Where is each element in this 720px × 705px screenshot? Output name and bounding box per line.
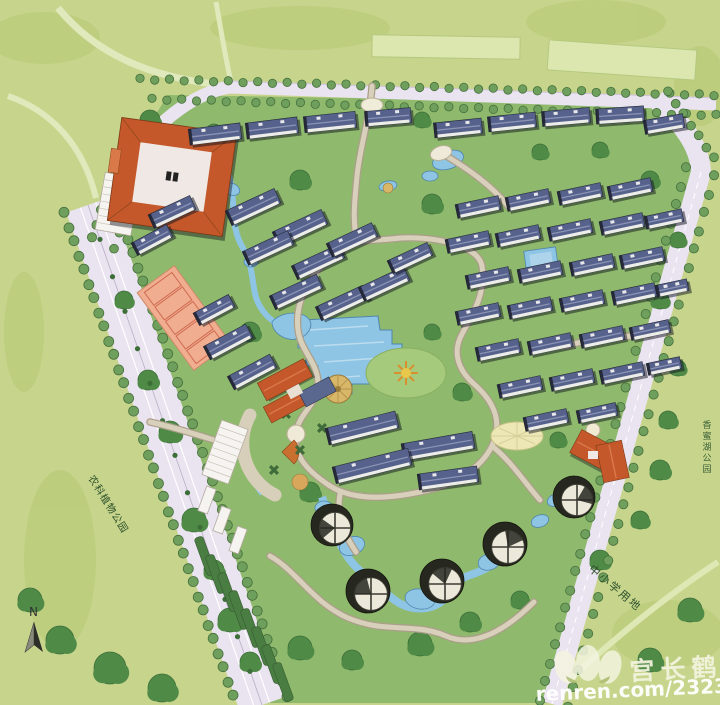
street-tree (327, 81, 335, 89)
street-tree (489, 105, 497, 113)
circular-tower (483, 522, 527, 566)
street-tree (87, 233, 96, 242)
street-tree (577, 86, 585, 94)
street-tree (110, 274, 115, 279)
street-tree (183, 564, 193, 574)
street-tree (188, 419, 198, 429)
street-tree (694, 131, 703, 140)
circular-tower (346, 569, 390, 613)
street-tree (228, 690, 238, 700)
street-tree (69, 236, 79, 246)
street-tree (415, 102, 423, 110)
street-tree (148, 94, 156, 102)
street-tree (676, 182, 685, 191)
street-tree (129, 406, 139, 416)
street-tree (197, 447, 207, 457)
street-tree (710, 153, 719, 162)
circular-tower (420, 559, 464, 603)
street-tree (223, 677, 233, 687)
street-tree (636, 88, 644, 96)
street-tree (634, 446, 643, 455)
street-tree (283, 78, 291, 86)
street-tree (474, 103, 482, 111)
street-tree (621, 383, 630, 392)
street-tree (702, 143, 711, 152)
street-tree (268, 79, 276, 87)
street-tree (386, 82, 394, 90)
street-tree (561, 603, 570, 612)
street-tree (712, 110, 720, 118)
circular-tower (553, 476, 595, 518)
scanned-master-plan: 农科植物公园中小学用地香蜜湖公园 N 宫长鹤 renren.com/232333… (0, 0, 720, 705)
street-tree (122, 309, 127, 314)
street-tree (224, 77, 232, 85)
street-tree (566, 586, 575, 595)
small-gold-plaza (292, 474, 308, 490)
street-tree (247, 669, 252, 674)
street-tree (357, 82, 365, 90)
street-tree (235, 634, 240, 639)
street-tree (239, 78, 247, 86)
circular-tower (311, 504, 353, 546)
street-tree (158, 491, 168, 501)
street-tree (124, 393, 134, 403)
street-tree (684, 263, 693, 272)
street-tree (193, 592, 203, 602)
street-tree (173, 535, 183, 545)
street-tree (110, 244, 119, 253)
street-tree (614, 519, 623, 528)
street-tree (415, 83, 423, 91)
street-tree (163, 507, 173, 517)
street-tree (504, 104, 512, 112)
north-label: N (29, 605, 38, 619)
street-tree (237, 97, 245, 105)
street-tree (298, 80, 306, 88)
street-tree (592, 88, 600, 96)
street-tree (172, 453, 177, 458)
street-tree (213, 649, 223, 659)
pond (422, 171, 438, 181)
street-tree (401, 81, 409, 89)
street-tree (563, 87, 571, 95)
street-tree (631, 346, 640, 355)
street-tree (237, 562, 247, 572)
street-tree (94, 308, 104, 318)
street-tree (385, 101, 393, 109)
street-tree (430, 82, 438, 90)
street-tree (136, 74, 144, 82)
street-tree (185, 490, 190, 495)
site-plan-map: 农科植物公园中小学用地香蜜湖公园 N 宫长鹤 renren.com/232333… (0, 0, 720, 705)
street-tree (704, 190, 713, 199)
street-tree (79, 264, 89, 274)
street-tree (192, 97, 200, 105)
street-tree (178, 548, 188, 558)
street-tree (639, 427, 648, 436)
street-tree (99, 321, 109, 331)
street-tree (571, 566, 580, 575)
street-tree (188, 577, 198, 587)
street-tree (222, 98, 230, 106)
street-tree (489, 84, 497, 92)
street-tree (699, 207, 708, 216)
street-tree (664, 337, 673, 346)
street-tree (518, 85, 526, 93)
street-tree (135, 346, 140, 351)
residential-building (596, 106, 648, 127)
street-tree (694, 227, 703, 236)
street-tree (168, 520, 178, 530)
street-tree (312, 79, 320, 87)
street-tree (556, 623, 565, 632)
street-tree (651, 273, 660, 282)
street-tree (445, 84, 453, 92)
street-tree (64, 223, 74, 233)
pavilion-dome (383, 183, 393, 193)
street-tree (97, 237, 102, 242)
street-tree (311, 100, 319, 108)
street-tree (104, 337, 114, 347)
street-tree (247, 590, 257, 600)
street-tree (198, 605, 208, 615)
street-tree (460, 83, 468, 91)
street-tree (180, 77, 188, 85)
street-tree (134, 422, 144, 432)
street-tree (158, 333, 168, 343)
street-tree (609, 536, 618, 545)
street-tree (445, 103, 453, 111)
street-tree (641, 309, 650, 318)
street-tree (581, 530, 590, 539)
street-tree (254, 77, 262, 85)
street-tree (576, 549, 585, 558)
street-tree (674, 300, 683, 309)
street-tree (84, 280, 94, 290)
street-tree (695, 90, 703, 98)
street-tree (604, 556, 613, 565)
street-tree (74, 251, 84, 261)
street-tree (109, 349, 119, 359)
street-tree (144, 450, 154, 460)
street-tree (203, 621, 213, 631)
street-tree (661, 236, 670, 245)
street-tree (242, 577, 252, 587)
street-tree (252, 606, 262, 616)
street-tree (474, 85, 482, 93)
street-tree (252, 98, 260, 106)
street-tree (139, 435, 149, 445)
street-tree (267, 97, 275, 105)
street-tree (664, 87, 673, 96)
street-tree (619, 500, 628, 509)
street-tree (342, 80, 350, 88)
street-tree (209, 78, 217, 86)
paving-circle (287, 425, 305, 443)
street-tree (89, 293, 99, 303)
street-tree (178, 390, 188, 400)
street-tree (163, 349, 173, 359)
street-tree (208, 633, 218, 643)
street-tree (459, 104, 467, 112)
street-tree (430, 104, 438, 112)
street-tree (533, 87, 541, 95)
parcel (372, 35, 520, 60)
street-tree (183, 406, 193, 416)
street-tree (218, 662, 228, 672)
street-tree (504, 86, 512, 94)
street-tree (621, 89, 629, 97)
street-tree (607, 87, 615, 95)
street-tree (133, 263, 143, 273)
street-tree (341, 101, 349, 109)
street-tree (681, 163, 690, 172)
street-tree (644, 410, 653, 419)
street-tree (177, 95, 185, 103)
street-tree (195, 76, 203, 84)
street-tree (114, 365, 124, 375)
street-tree (548, 86, 556, 94)
street-tree (624, 483, 633, 492)
street-tree (148, 463, 158, 473)
street-tree (652, 108, 660, 116)
street-tree (629, 463, 638, 472)
street-tree (207, 96, 215, 104)
street-tree (138, 276, 148, 286)
street-tree (173, 377, 183, 387)
street-tree (584, 629, 593, 638)
street-tree (168, 362, 178, 372)
street-tree (689, 244, 698, 253)
street-tree (709, 171, 718, 180)
street-tree (163, 96, 171, 104)
map-label: 香蜜湖公园 (702, 420, 711, 475)
street-tree (651, 90, 659, 98)
street-tree (151, 76, 159, 84)
street-tree (710, 92, 718, 100)
street-tree (589, 609, 598, 618)
street-tree (153, 479, 163, 489)
street-tree (671, 199, 680, 208)
street-tree (586, 513, 595, 522)
street-tree (296, 98, 304, 106)
street-tree (551, 640, 560, 649)
street-tree (59, 207, 69, 217)
street-tree (697, 111, 705, 119)
street-tree (326, 99, 334, 107)
street-tree (611, 420, 620, 429)
street-tree (687, 121, 696, 130)
street-tree (649, 390, 658, 399)
street-tree (165, 75, 173, 83)
street-tree (594, 592, 603, 601)
street-tree (545, 659, 554, 668)
street-tree (197, 525, 202, 530)
street-tree (119, 378, 129, 388)
street-tree (281, 99, 289, 107)
street-tree (680, 91, 688, 99)
street-tree (147, 381, 152, 386)
street-tree (671, 99, 680, 108)
